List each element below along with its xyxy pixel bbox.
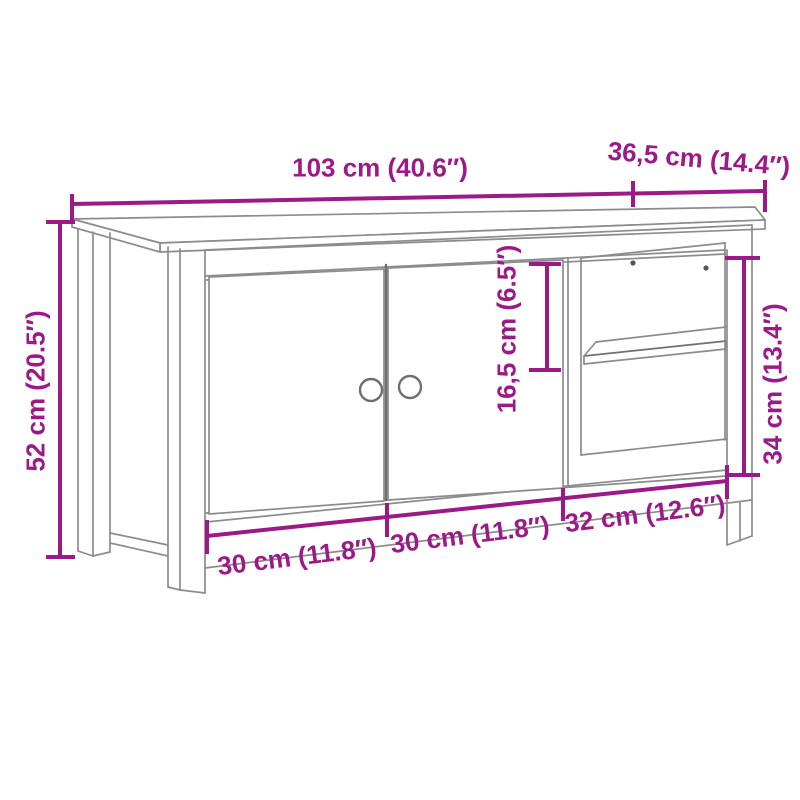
dimension-label-open-section-height: 34 cm (13.4″) (758, 303, 789, 464)
back-left-leg (78, 229, 110, 556)
dimension-label-compartment-top-height: 16,5 cm (6.5″) (492, 245, 523, 414)
left-door (209, 269, 384, 514)
dimension-label-overall-height: 52 cm (20.5″) (21, 310, 52, 471)
front-left-leg (168, 247, 205, 593)
compartment-floor (581, 439, 727, 455)
left-side-rail (110, 533, 168, 556)
right-door (388, 260, 563, 500)
dimension-open-height-line (725, 258, 760, 475)
cabinet-line-drawing (0, 0, 800, 800)
screw-hole-dot (703, 265, 708, 270)
dimension-label-overall-width: 103 cm (40.6″) (292, 153, 468, 184)
partition-panel (568, 258, 581, 487)
screw-hole-dot (630, 260, 635, 265)
middle-shelf (584, 327, 726, 364)
dimension-diagram: 103 cm (40.6″) 36,5 cm (14.4″) 52 cm (20… (0, 0, 800, 800)
open-compartment (581, 243, 727, 455)
